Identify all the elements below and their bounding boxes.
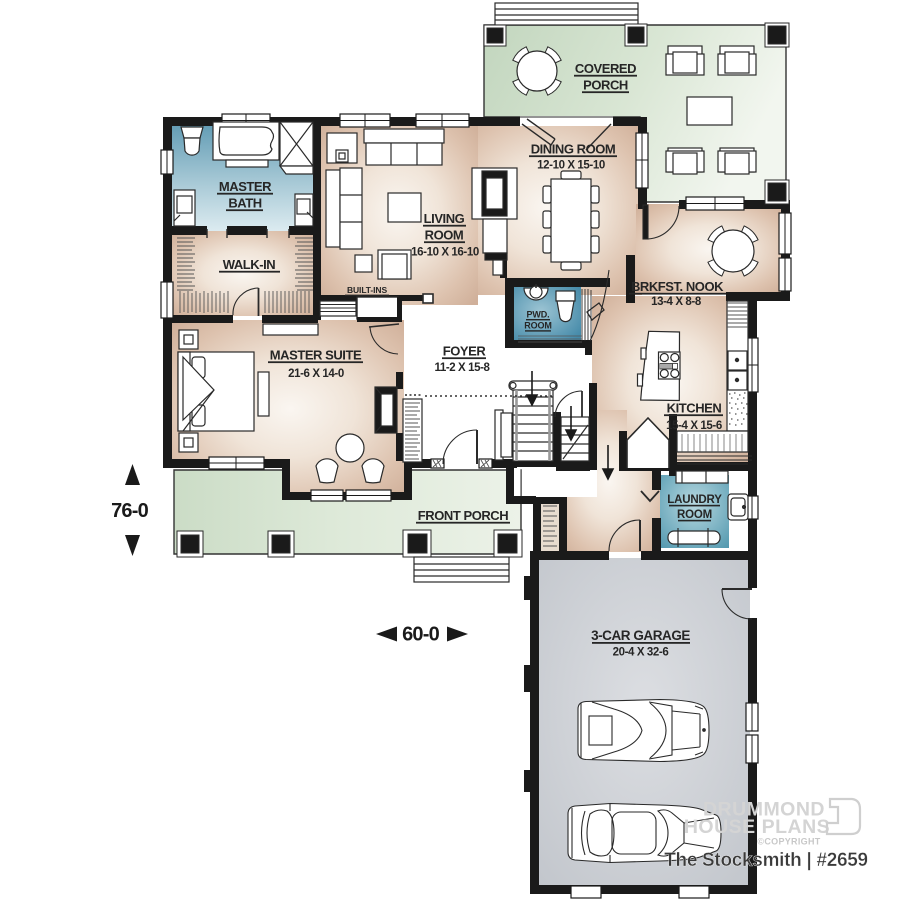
svg-text:LAUNDRY: LAUNDRY [667,494,722,506]
svg-text:3-CAR GARAGE: 3-CAR GARAGE [591,628,690,643]
svg-text:60-0: 60-0 [402,624,440,646]
svg-text:20-4 X 32-6: 20-4 X 32-6 [613,647,669,659]
svg-text:BATH: BATH [228,196,261,211]
svg-text:LIVING: LIVING [424,211,465,226]
svg-text:DINING ROOM: DINING ROOM [531,142,616,157]
svg-text:The Stocksmith | #2659: The Stocksmith | #2659 [664,850,868,871]
svg-text:ROOM: ROOM [425,228,464,243]
svg-text:PWD.: PWD. [526,310,549,320]
svg-text:16-10 X 16-10: 16-10 X 16-10 [411,247,479,259]
svg-text:12-10 X 15-10: 12-10 X 15-10 [537,160,605,172]
svg-text:11-2 X 15-8: 11-2 X 15-8 [434,362,490,374]
svg-text:21-6 X 14-0: 21-6 X 14-0 [288,368,344,380]
svg-text:PORCH: PORCH [583,78,628,93]
svg-text:76-0: 76-0 [111,500,149,522]
svg-text:ROOM: ROOM [524,321,552,331]
svg-text:KITCHEN: KITCHEN [667,401,722,416]
svg-text:MASTER SUITE: MASTER SUITE [270,348,362,363]
svg-text:13-4 X 8-8: 13-4 X 8-8 [651,296,702,308]
svg-text:©COPYRIGHT: ©COPYRIGHT [757,837,820,847]
svg-text:MASTER: MASTER [219,179,272,194]
svg-text:FRONT PORCH: FRONT PORCH [418,508,508,523]
svg-text:COVERED: COVERED [575,61,636,76]
svg-text:FOYER: FOYER [443,344,487,359]
svg-text:WALK-IN: WALK-IN [223,257,276,272]
svg-text:ROOM: ROOM [677,509,712,521]
svg-text:BUILT-INS: BUILT-INS [347,285,387,295]
svg-text:HOUSE PLANS: HOUSE PLANS [684,816,830,838]
svg-text:15-4 X 15-6: 15-4 X 15-6 [666,420,722,432]
svg-text:BRKFST. NOOK: BRKFST. NOOK [631,279,724,294]
